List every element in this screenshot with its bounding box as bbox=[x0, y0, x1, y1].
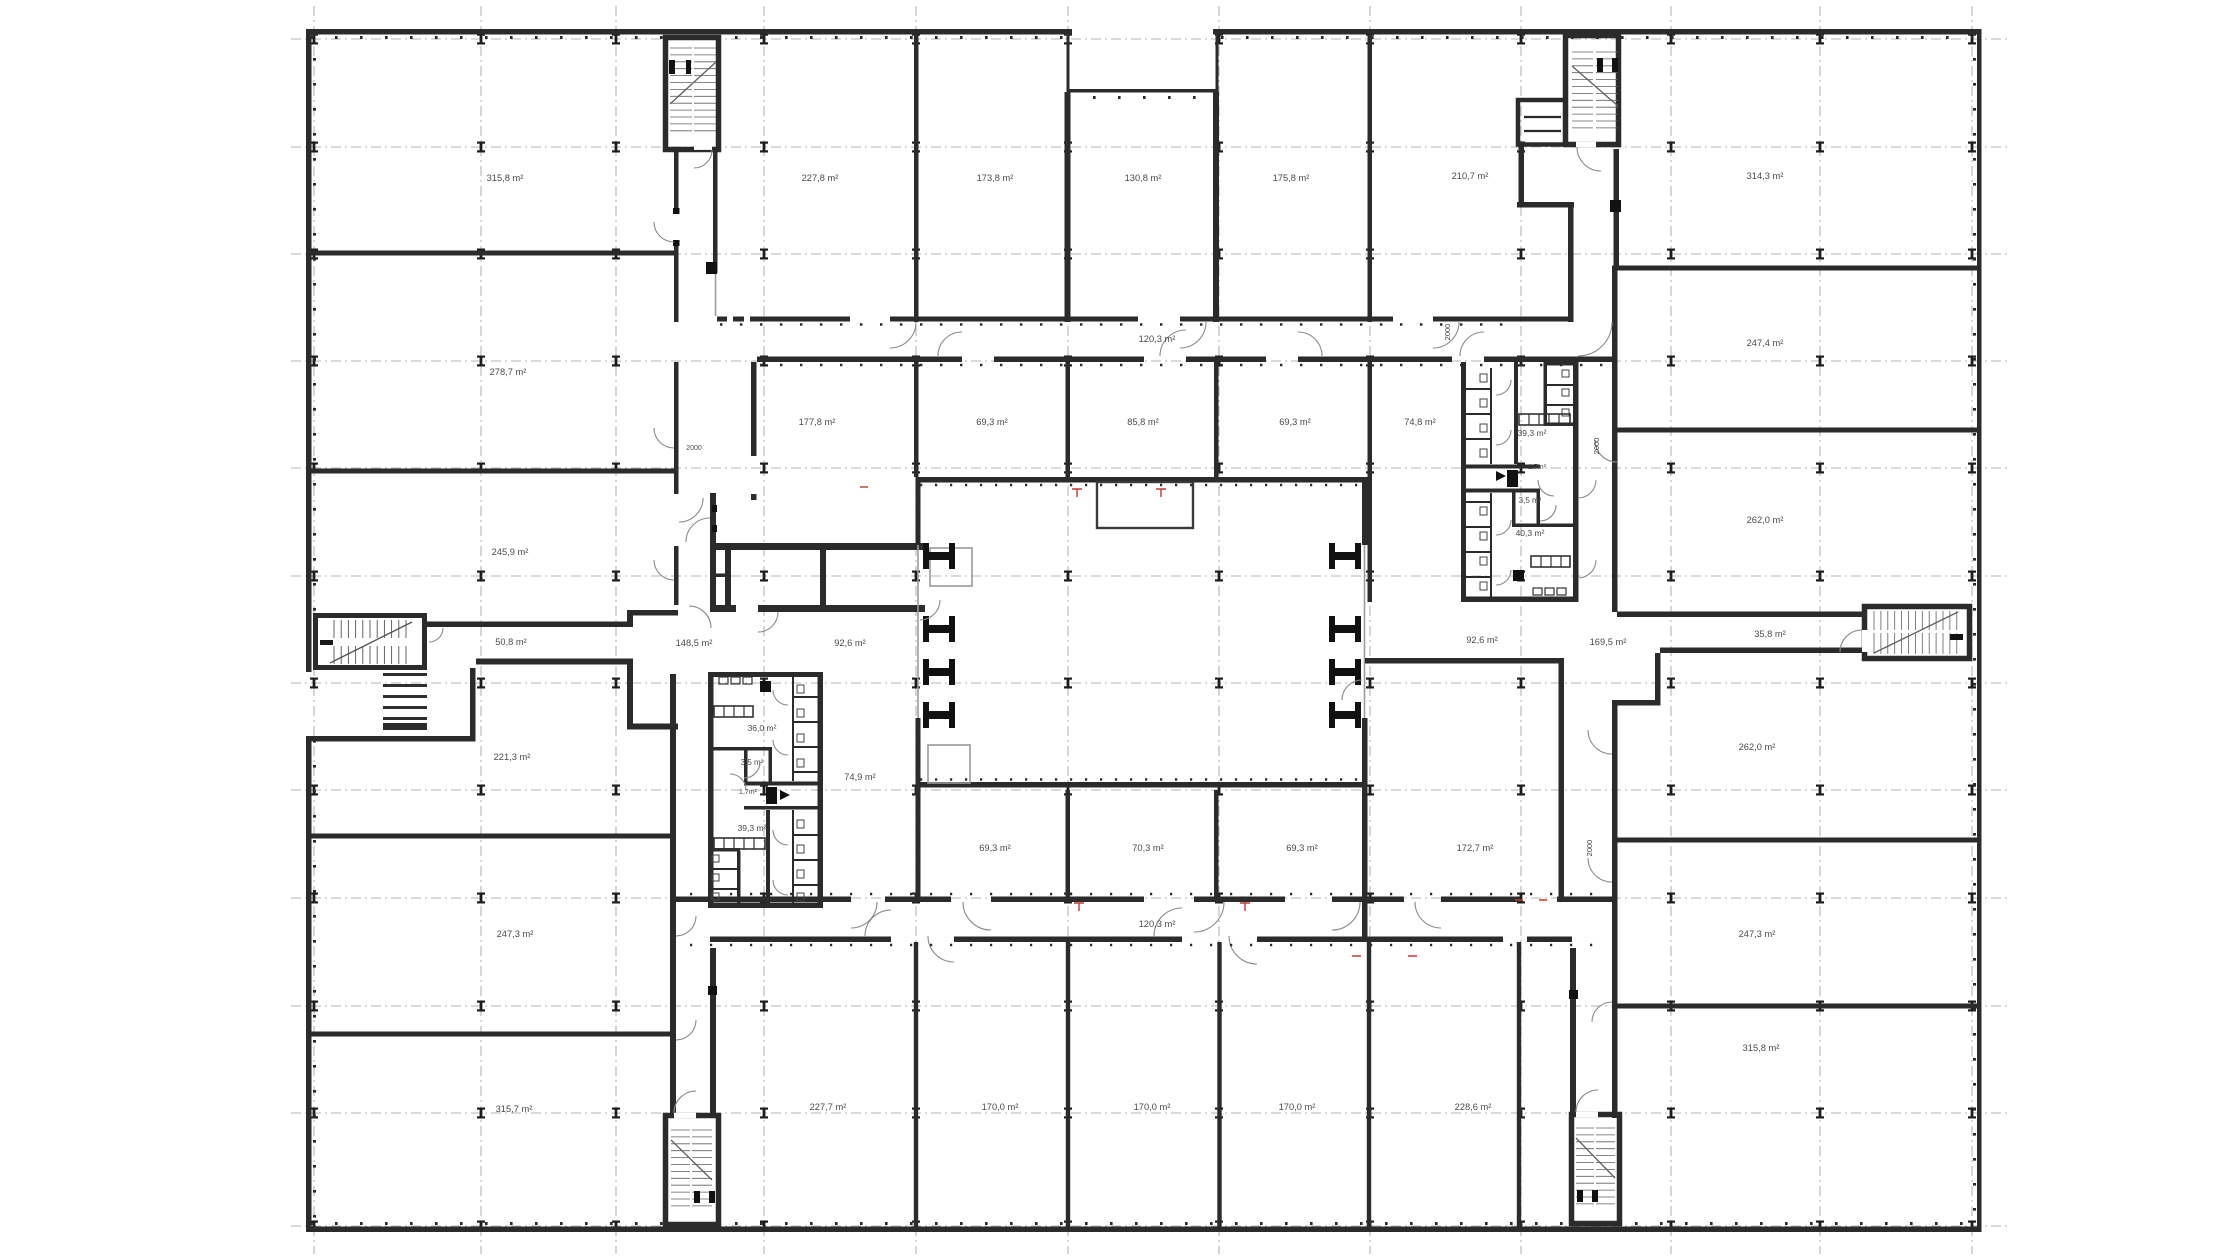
svg-text:247,3 m²: 247,3 m² bbox=[1739, 929, 1776, 939]
svg-text:120,3 m²: 120,3 m² bbox=[1139, 919, 1176, 929]
svg-text:2000: 2000 bbox=[686, 445, 702, 452]
svg-text:170,0 m²: 170,0 m² bbox=[1134, 1102, 1171, 1112]
svg-text:2000: 2000 bbox=[1443, 324, 1452, 341]
svg-text:245,9 m²: 245,9 m² bbox=[492, 547, 529, 557]
svg-text:2000: 2000 bbox=[1585, 840, 1594, 857]
svg-text:315,8 m²: 315,8 m² bbox=[487, 173, 524, 183]
svg-text:85,8 m²: 85,8 m² bbox=[1127, 417, 1159, 427]
svg-text:69,3 m²: 69,3 m² bbox=[979, 843, 1011, 853]
svg-text:69,3 m²: 69,3 m² bbox=[1279, 417, 1311, 427]
svg-text:70,3 m²: 70,3 m² bbox=[1132, 843, 1164, 853]
svg-text:148,5 m²: 148,5 m² bbox=[676, 638, 713, 648]
svg-text:175,8 m²: 175,8 m² bbox=[1273, 173, 1310, 183]
svg-text:170,0 m²: 170,0 m² bbox=[1279, 1102, 1316, 1112]
svg-text:247,3 m²: 247,3 m² bbox=[497, 929, 534, 939]
svg-text:278,7 m²: 278,7 m² bbox=[490, 367, 527, 377]
svg-text:227,7 m²: 227,7 m² bbox=[810, 1102, 847, 1112]
svg-text:92,6 m²: 92,6 m² bbox=[1466, 635, 1498, 645]
svg-text:247,4 m²: 247,4 m² bbox=[1747, 338, 1784, 348]
svg-text:262,0 m²: 262,0 m² bbox=[1739, 742, 1776, 752]
svg-text:177,8 m²: 177,8 m² bbox=[799, 417, 836, 427]
svg-text:169,5 m²: 169,5 m² bbox=[1590, 637, 1627, 647]
svg-text:92,6 m²: 92,6 m² bbox=[834, 638, 866, 648]
svg-text:315,8 m²: 315,8 m² bbox=[1743, 1043, 1780, 1053]
svg-text:130,8 m²: 130,8 m² bbox=[1125, 173, 1162, 183]
svg-text:1,7m²: 1,7m² bbox=[739, 789, 758, 796]
svg-text:120,3 m²: 120,3 m² bbox=[1139, 334, 1176, 344]
svg-text:221,3 m²: 221,3 m² bbox=[494, 752, 531, 762]
svg-text:1,7m²: 1,7m² bbox=[1528, 464, 1547, 471]
svg-text:172,7 m²: 172,7 m² bbox=[1457, 843, 1494, 853]
svg-text:74,9 m²: 74,9 m² bbox=[844, 772, 876, 782]
svg-text:2000: 2000 bbox=[1592, 438, 1601, 455]
svg-text:69,3 m²: 69,3 m² bbox=[976, 417, 1008, 427]
svg-text:262,0 m²: 262,0 m² bbox=[1747, 515, 1784, 525]
svg-text:50,8 m²: 50,8 m² bbox=[495, 637, 527, 647]
svg-text:39,3 m²: 39,3 m² bbox=[1518, 428, 1547, 438]
svg-text:173,8 m²: 173,8 m² bbox=[977, 173, 1014, 183]
svg-text:36,0 m²: 36,0 m² bbox=[748, 723, 777, 733]
svg-text:315,7 m²: 315,7 m² bbox=[496, 1104, 533, 1114]
svg-text:69,3 m²: 69,3 m² bbox=[1286, 843, 1318, 853]
svg-text:40,3 m²: 40,3 m² bbox=[1516, 528, 1545, 538]
svg-text:3,5 m²: 3,5 m² bbox=[1519, 496, 1542, 505]
svg-text:170,0 m²: 170,0 m² bbox=[982, 1102, 1019, 1112]
svg-text:3,5 m²: 3,5 m² bbox=[741, 758, 764, 767]
svg-text:74,8 m²: 74,8 m² bbox=[1404, 417, 1436, 427]
svg-text:35,8 m²: 35,8 m² bbox=[1754, 629, 1786, 639]
svg-text:210,7 m²: 210,7 m² bbox=[1452, 171, 1489, 181]
svg-text:39,3 m²: 39,3 m² bbox=[738, 823, 767, 833]
svg-text:228,6 m²: 228,6 m² bbox=[1455, 1102, 1492, 1112]
svg-text:227,8 m²: 227,8 m² bbox=[802, 173, 839, 183]
svg-text:314,3 m²: 314,3 m² bbox=[1747, 171, 1784, 181]
